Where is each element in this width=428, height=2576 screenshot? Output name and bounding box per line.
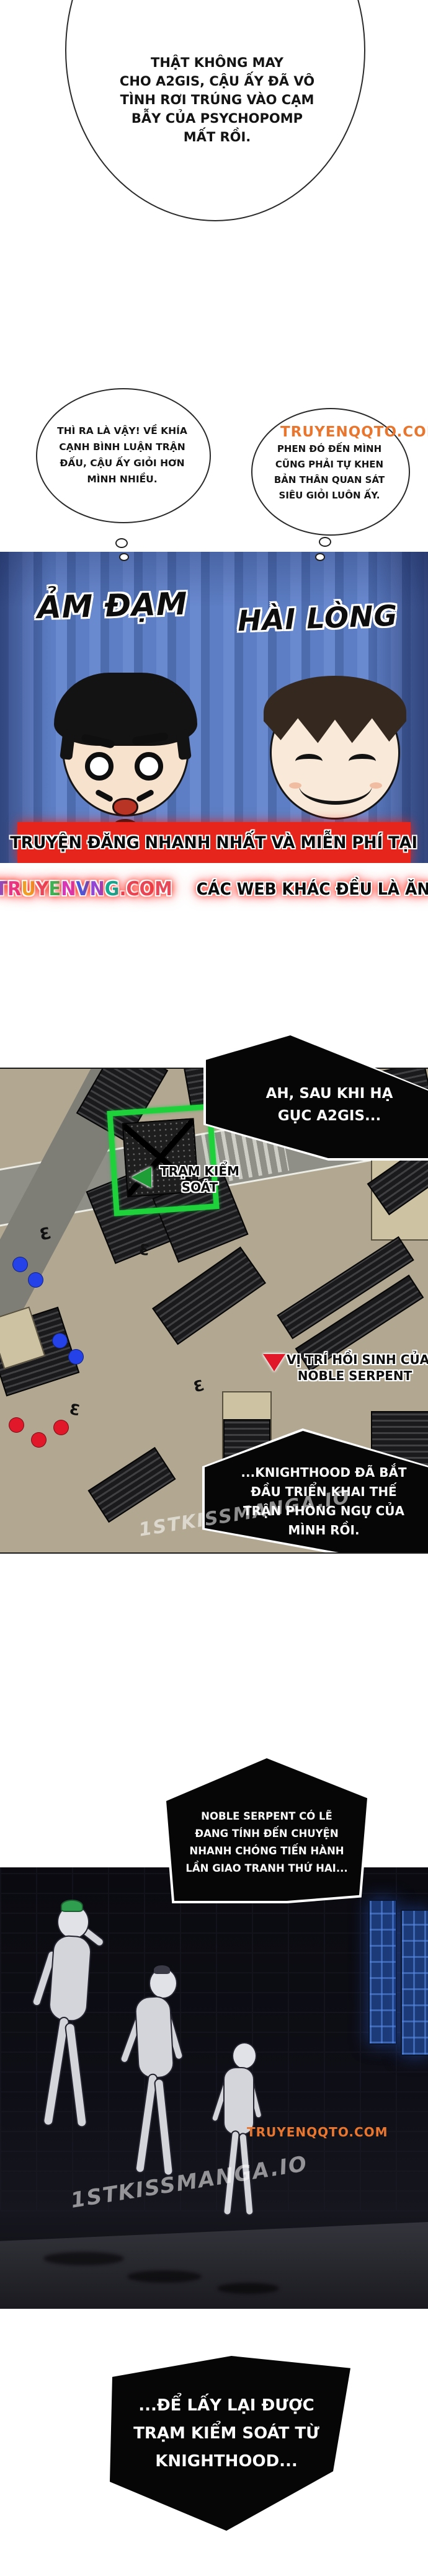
bubble-line: THẬT KHÔNG MAY (74, 53, 360, 72)
promo-banner-bottom: NETTRUYENVNG.COM CÁC WEB KHÁC ĐỀU LÀ ĂN … (0, 863, 428, 915)
site-name-letter: U (21, 878, 35, 900)
eye-shocked (135, 752, 163, 781)
caption-text: NOBLE SERPENT CÓ LẼ ĐANG TÍNH ĐẾN CHUYỆN… (166, 1758, 367, 1901)
map-label-line: TRẠM KIỂM (156, 1163, 243, 1179)
thought-bubble-left-text: THÌ RA LÀ VẬY! VỀ KHÍA CẠNH BÌNH LUẬN TR… (38, 423, 206, 487)
site-name-letter: T (0, 878, 7, 900)
caption-line: KNIGHTHOOD... (102, 2448, 350, 2476)
map-squiggle-mark: 3 (138, 1241, 150, 1259)
blue-unit-dot (68, 1349, 84, 1365)
promo-banner-line2: CÁC WEB KHÁC ĐỀU LÀ ĂN CẮP (197, 880, 428, 899)
site-name-letter: O (140, 878, 155, 900)
banner-site-name: NETTRUYENVNG.COM (0, 878, 172, 900)
thought-trail-dot (119, 553, 129, 561)
dark-hair-streak (154, 1965, 170, 1974)
blush (370, 782, 382, 789)
lit-window (368, 1900, 397, 2045)
caption-line: AH, SAU KHI HẠ (231, 1082, 428, 1105)
caption-text: ...ĐỂ LẤY LẠI ĐƯỢC TRẠM KIỂM SOÁT TỪ KNI… (102, 2356, 350, 2531)
blue-unit-dot (28, 1272, 43, 1288)
map-label-line: SOÁT (156, 1179, 243, 1195)
bubble-line: CŨNG PHẢI TỰ KHEN (257, 457, 401, 472)
site-name-letter: R (7, 878, 21, 900)
site-name-letter: V (76, 878, 89, 900)
bubble-line: TÌNH RƠI TRÚNG VÀO CẠM (74, 91, 360, 109)
speech-bubble-psychopomp-text: THẬT KHÔNG MAY CHO A2GIS, CẬU ẤY ĐÃ VÔ T… (74, 53, 360, 146)
checkpoint-highlight-box (107, 1104, 219, 1216)
caption-after-a2gis: AH, SAU KHI HẠ GỤC A2GIS... (206, 1035, 428, 1158)
eye-happy-closed (349, 754, 376, 769)
thought-trail-dot (115, 538, 128, 548)
site-name-letter: C (126, 878, 139, 900)
bubble-line: SIÊU GIỎI LUÔN ẤY. (257, 488, 401, 503)
checkpoint-arrow-icon (132, 1167, 151, 1188)
figure-torso (135, 1996, 175, 2079)
site-name-letter: . (119, 878, 126, 900)
red-unit-dot (31, 1432, 47, 1448)
eye-shocked (85, 752, 114, 781)
caption-line: TRẠM KIỂM SOÁT TỪ (102, 2420, 350, 2448)
caption-line: ...ĐỂ LẤY LẠI ĐƯỢC (102, 2392, 350, 2420)
map-building (88, 1447, 176, 1523)
caption-line: GỤC A2GIS... (231, 1105, 428, 1127)
promo-banner-line1: TRUYỆN ĐĂNG NHANH NHẤT VÀ MIỄN PHÍ TẠI (11, 833, 418, 852)
watermark-truyenqqto: TRUYENQQTO.COM (280, 424, 428, 440)
lit-window (401, 1910, 428, 2056)
figure-head (232, 2042, 257, 2069)
caption-noble-serpent: NOBLE SERPENT CÓ LẼ ĐANG TÍNH ĐẾN CHUYỆN… (166, 1758, 367, 1901)
respawn-label: VỊ TRÍ HỒI SINH CỦA NOBLE SERPENT (287, 1352, 423, 1384)
bubble-line: MÌNH NHIỀU. (38, 471, 206, 487)
caption-line: LẦN GIAO TRANH THỨ HAI... (166, 1860, 367, 1877)
map-building (152, 1247, 266, 1345)
thought-bubble-right-text: PHEN ĐÓ ĐẾN MÌNH CŨNG PHẢI TỰ KHEN BẢN T… (257, 441, 401, 503)
bubble-line: THÌ RA LÀ VẬY! VỀ KHÍA (38, 423, 206, 439)
watermark-truyenqqto: TRUYENQQTO.COM (247, 2125, 388, 2140)
map-squiggle-mark: 3 (68, 1401, 81, 1419)
caption-line: NOBLE SERPENT CÓ LẼ (166, 1808, 367, 1825)
map-label-line: VỊ TRÍ HỒI SINH CỦA (287, 1352, 423, 1368)
figure-torso (48, 1934, 92, 2022)
blush (289, 782, 301, 789)
thought-trail-dot (315, 553, 325, 561)
caption-line: NHANH CHÓNG TIẾN HÀNH (166, 1843, 367, 1860)
site-name-letter: G (105, 878, 120, 900)
site-name-letter: Y (36, 878, 49, 900)
alley-floor (0, 2222, 428, 2309)
caption-line: ĐANG TÍNH ĐẾN CHUYỆN (166, 1825, 367, 1843)
site-name-letter: E (48, 878, 61, 900)
site-name-letter: M (154, 878, 172, 900)
bubble-line: BẢN THÂN QUAN SÁT (257, 472, 401, 488)
eye-happy-closed (295, 754, 323, 769)
label-pleased: HÀI LÒNG (237, 599, 398, 638)
caption-line: ...KNIGHTHOOD ĐÃ BẮT (220, 1463, 428, 1482)
open-mouth (112, 798, 138, 817)
site-name-letter: N (61, 878, 76, 900)
red-unit-dot (53, 1420, 69, 1435)
blue-unit-dot (12, 1257, 28, 1272)
bubble-line: CẠNH BÌNH LUẬN TRẬN (38, 439, 206, 455)
red-unit-dot (9, 1417, 24, 1433)
respawn-marker-icon (263, 1354, 285, 1371)
caption-retake-checkpoint: ...ĐỂ LẤY LẠI ĐƯỢC TRẠM KIỂM SOÁT TỪ KNI… (102, 2356, 350, 2531)
map-squiggle-mark: 3 (192, 1376, 206, 1396)
bubble-line: MẤT RỒI. (74, 128, 360, 146)
tv-broadcast-panel: ẢM ĐẠM HÀI LÒNG (0, 552, 428, 863)
caption-text: AH, SAU KHI HẠ GỤC A2GIS... (206, 1035, 428, 1158)
blue-unit-dot (52, 1333, 68, 1348)
bubble-line: CHO A2GIS, CẬU ẤY ĐÃ VÔ (74, 72, 360, 91)
checkpoint-label: TRẠM KIỂM SOÁT (156, 1163, 243, 1195)
bubble-line: PHEN ĐÓ ĐẾN MÌNH (257, 441, 401, 457)
map-label-line: NOBLE SERPENT (287, 1368, 423, 1384)
green-hair (61, 1900, 83, 1912)
label-gloomy: ẢM ĐẠM (37, 586, 188, 626)
smile (299, 766, 372, 805)
thought-trail-dot (319, 537, 331, 547)
alley-scene-panel: TRUYENQQTO.COM 1STKISSMANGA.IO (0, 1867, 428, 2309)
promo-banner-top: TRUYỆN ĐĂNG NHANH NHẤT VÀ MIỄN PHÍ TẠI (17, 822, 411, 863)
bubble-line: BẪY CỦA PSYCHOPOMP (74, 109, 360, 128)
webtoon-page: THẬT KHÔNG MAY CHO A2GIS, CẬU ẤY ĐÃ VÔ T… (0, 0, 428, 2576)
bubble-line: ĐẤU, CẬU ẤY GIỎI HƠN (38, 455, 206, 471)
site-name-letter: N (90, 878, 105, 900)
caption-line: MÌNH RỒI. (220, 1521, 428, 1540)
